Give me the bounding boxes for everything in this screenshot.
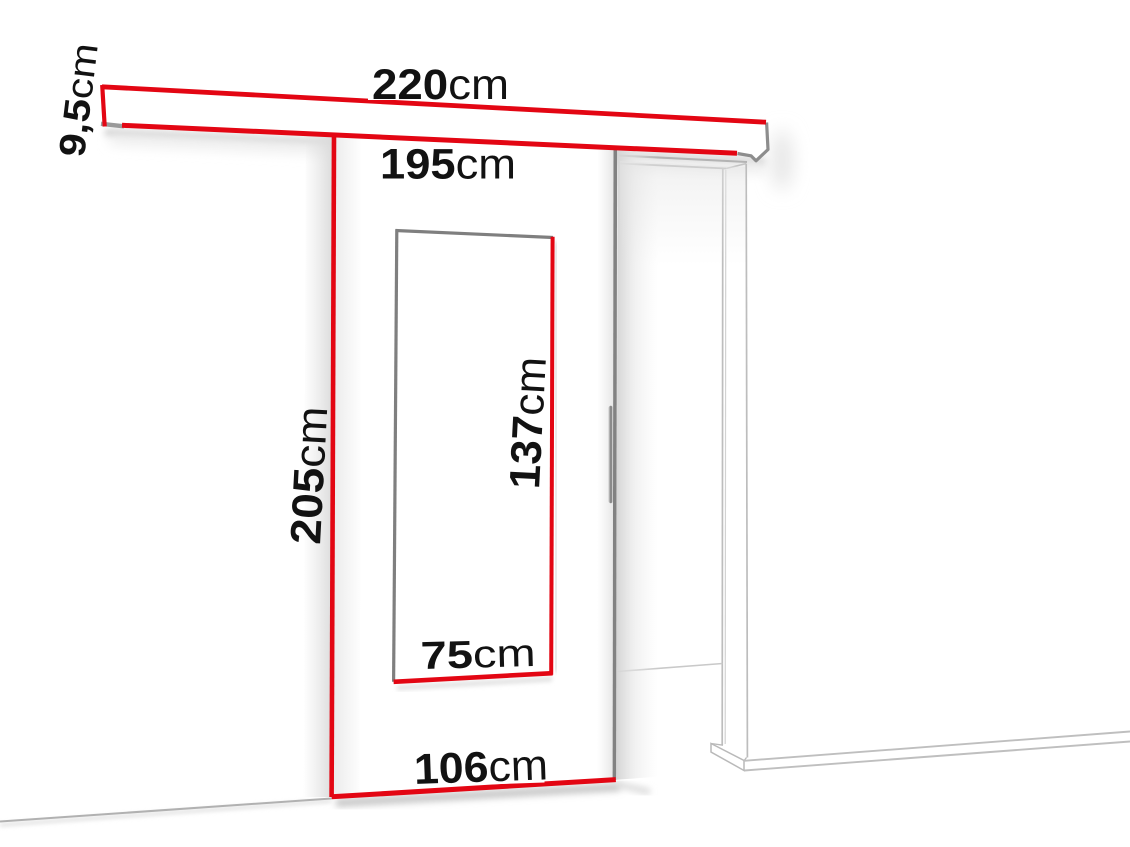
- svg-text:195cm: 195cm: [380, 141, 516, 189]
- svg-text:75cm: 75cm: [420, 632, 536, 678]
- svg-text:137cm: 137cm: [501, 356, 556, 490]
- svg-text:106cm: 106cm: [413, 741, 549, 794]
- svg-text:9,5cm: 9,5cm: [51, 41, 106, 159]
- svg-text:205cm: 205cm: [282, 405, 337, 545]
- svg-text:220cm: 220cm: [372, 61, 509, 109]
